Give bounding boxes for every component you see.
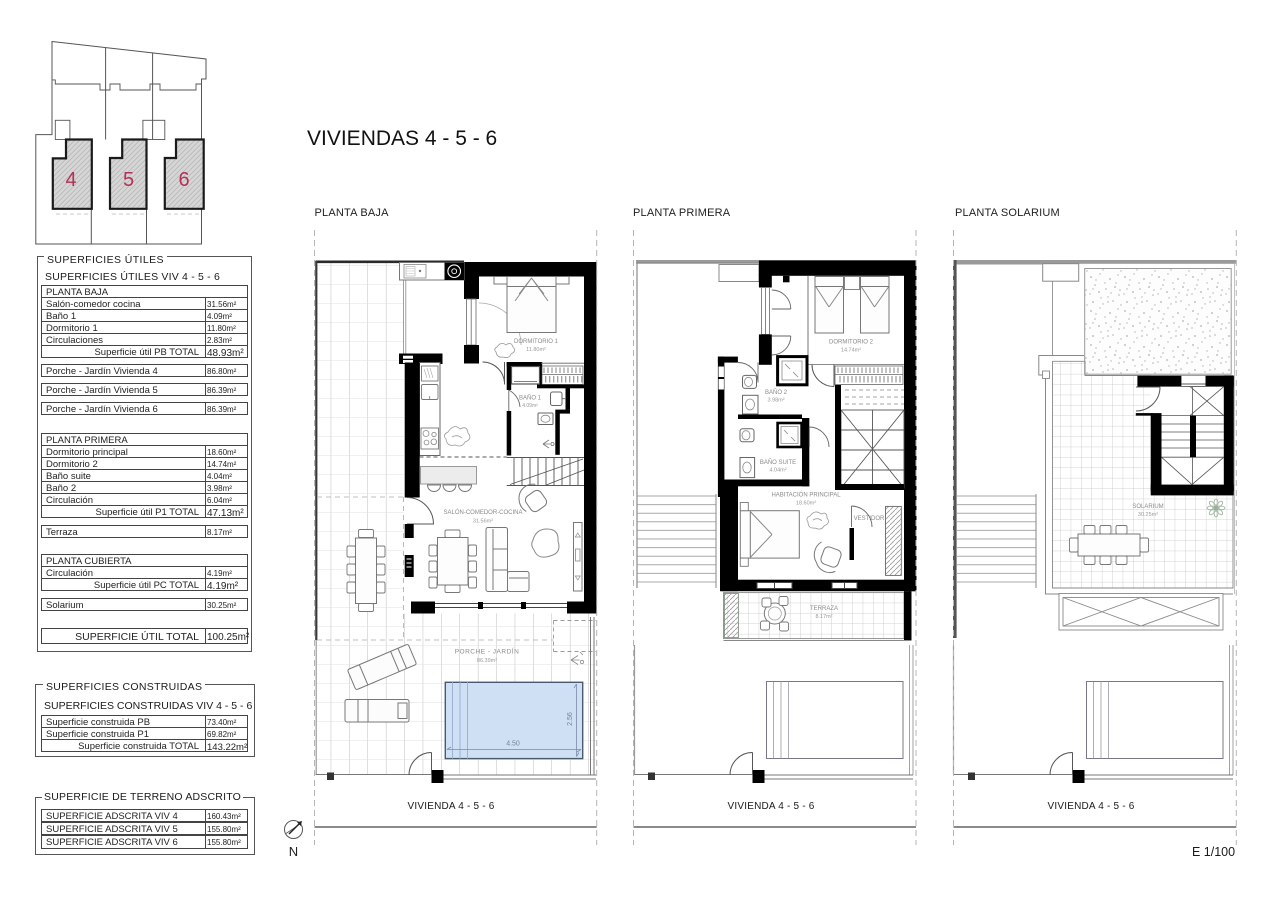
svg-text:DORMITORIO 2: DORMITORIO 2 [829, 340, 874, 346]
svg-text:4: 4 [65, 169, 76, 191]
svg-text:SALÓN-COMEDOR-COCINA: SALÓN-COMEDOR-COCINA [443, 509, 522, 516]
svg-text:8.17m²: 8.17m² [815, 614, 832, 620]
svg-text:TERRAZA: TERRAZA [810, 606, 838, 612]
svg-text:BAÑO SUITE: BAÑO SUITE [760, 459, 796, 466]
svg-text:2.56: 2.56 [567, 712, 574, 726]
svg-text:DORMITORIO 1: DORMITORIO 1 [514, 339, 559, 345]
svg-text:31.56m²: 31.56m² [473, 519, 493, 525]
svg-text:18.60m²: 18.60m² [796, 501, 816, 507]
svg-text:4.50: 4.50 [506, 741, 520, 748]
svg-text:BAÑO 2: BAÑO 2 [765, 389, 788, 396]
svg-text:14.74m²: 14.74m² [841, 348, 861, 354]
svg-text:HABITACIÓN PRINCIPAL: HABITACIÓN PRINCIPAL [771, 492, 841, 499]
svg-text:3.98m²: 3.98m² [767, 398, 784, 404]
svg-text:30.25m²: 30.25m² [1138, 512, 1158, 518]
svg-text:N: N [289, 844, 298, 859]
svg-text:11.80m²: 11.80m² [526, 347, 546, 353]
svg-text:SOLARIUM: SOLARIUM [1132, 504, 1163, 510]
svg-text:6: 6 [178, 169, 189, 191]
svg-text:86.39m²: 86.39m² [477, 658, 497, 664]
svg-text:4.04m²: 4.04m² [769, 468, 786, 474]
svg-text:PORCHE - JARDÍN: PORCHE - JARDÍN [455, 647, 520, 656]
svg-text:5: 5 [123, 169, 134, 191]
svg-text:BAÑO 1: BAÑO 1 [519, 395, 542, 402]
svg-text:4.09m²: 4.09m² [522, 403, 538, 409]
